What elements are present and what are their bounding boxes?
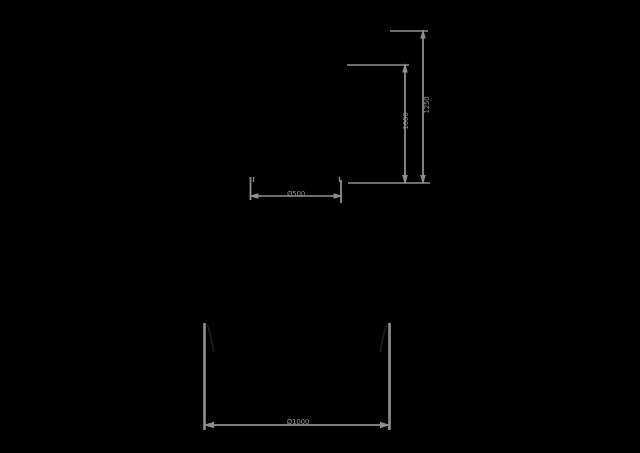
- dimension-bottom-width: Ø1000: [204, 323, 391, 430]
- dimension-label-bottom-width: Ø1000: [287, 418, 309, 426]
- dimension-label-partial-height: 1000: [402, 112, 410, 129]
- object-silhouette-left: [207, 324, 214, 352]
- object-silhouette-right: [381, 324, 388, 352]
- dimension-label-top-width: Ø500: [287, 190, 305, 198]
- dimension-total-height: 1250: [390, 29, 431, 185]
- dimension-partial-height: 1000: [347, 63, 410, 185]
- dimension-label-total-height: 1250: [423, 96, 431, 113]
- dimension-top-width: Ø500: [249, 177, 343, 203]
- dimension-drawing: 1250 1000 Ø500: [0, 0, 640, 453]
- drawing-canvas: 1250 1000 Ø500: [0, 0, 640, 453]
